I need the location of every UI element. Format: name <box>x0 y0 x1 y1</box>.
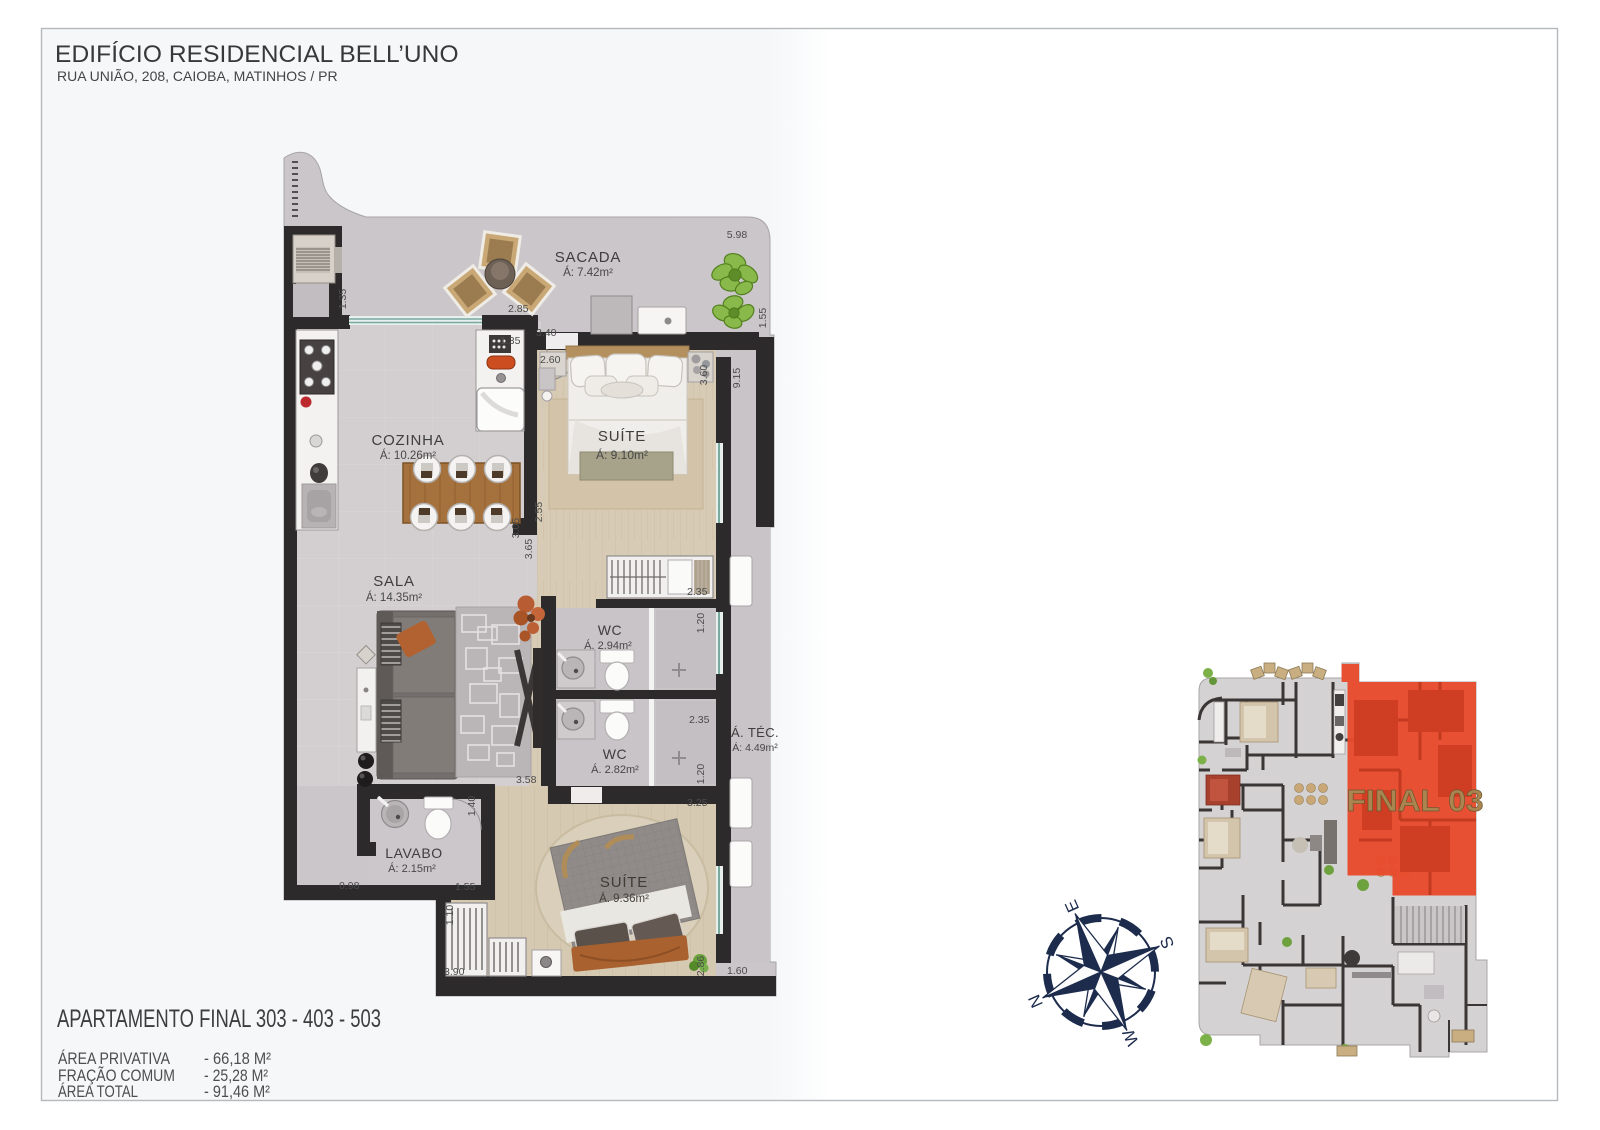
svg-text:1.10: 1.10 <box>444 905 456 926</box>
svg-text:Á: 7.42m²: Á: 7.42m² <box>563 266 613 279</box>
svg-text:1.35: 1.35 <box>500 335 521 347</box>
svg-text:2.86: 2.86 <box>695 956 707 977</box>
svg-text:0.98: 0.98 <box>339 880 360 892</box>
svg-text:2.35: 2.35 <box>687 586 708 598</box>
svg-text:5.98: 5.98 <box>727 229 748 241</box>
svg-text:3.60: 3.60 <box>698 365 710 386</box>
svg-text:SUÍTE: SUÍTE <box>600 874 648 891</box>
svg-text:2.85: 2.85 <box>508 303 529 315</box>
svg-text:3.05: 3.05 <box>510 518 522 539</box>
svg-text:3.40: 3.40 <box>536 327 557 339</box>
svg-text:FRAÇÃO COMUM: FRAÇÃO COMUM <box>58 1065 175 1085</box>
svg-text:FINAL 03: FINAL 03 <box>1347 783 1484 818</box>
svg-text:3.90: 3.90 <box>444 966 465 978</box>
svg-text:WC: WC <box>598 622 623 638</box>
svg-text:WC: WC <box>603 746 628 762</box>
svg-text:1.55: 1.55 <box>455 881 476 893</box>
svg-text:3.65: 3.65 <box>523 539 535 560</box>
svg-text:Á: 10.26m²: Á: 10.26m² <box>380 449 436 462</box>
svg-text:2.55: 2.55 <box>533 502 545 523</box>
svg-text:1.40: 1.40 <box>466 796 478 817</box>
svg-text:1.55: 1.55 <box>757 308 769 329</box>
svg-text:LAVABO: LAVABO <box>385 845 443 861</box>
svg-text:ÁREA PRIVATIVA: ÁREA PRIVATIVA <box>58 1049 170 1068</box>
svg-text:Á. TÉC.: Á. TÉC. <box>731 725 779 740</box>
svg-text:SUÍTE: SUÍTE <box>598 428 646 445</box>
svg-text:Á. 2.94m²: Á. 2.94m² <box>584 639 632 652</box>
svg-text:- 66,18 M²: - 66,18 M² <box>204 1050 271 1068</box>
svg-text:9.15: 9.15 <box>731 368 743 389</box>
svg-text:COZINHA: COZINHA <box>371 432 444 449</box>
svg-text:SACADA: SACADA <box>555 249 622 266</box>
svg-text:EDIFÍCIO RESIDENCIAL BELL’UNO: EDIFÍCIO RESIDENCIAL BELL’UNO <box>55 41 459 68</box>
svg-text:1.20: 1.20 <box>695 613 707 634</box>
svg-text:3.58: 3.58 <box>516 774 537 786</box>
svg-text:Á: 9.10m²: Á: 9.10m² <box>596 447 648 462</box>
svg-text:2.35: 2.35 <box>689 714 710 726</box>
svg-text:APARTAMENTO FINAL 303 - 403 -: APARTAMENTO FINAL 303 - 403 - 503 <box>57 1005 381 1033</box>
svg-text:1.35: 1.35 <box>337 289 349 310</box>
svg-text:Á. 2.82m²: Á. 2.82m² <box>591 763 639 776</box>
svg-text:1.60: 1.60 <box>727 965 748 977</box>
svg-text:RUA UNIÃO, 208, CAIOBA, MATINH: RUA UNIÃO, 208, CAIOBA, MATINHOS / PR <box>57 68 338 84</box>
svg-text:- 91,46 M²: - 91,46 M² <box>204 1083 270 1101</box>
svg-text:ÁREA TOTAL: ÁREA TOTAL <box>58 1082 138 1101</box>
svg-text:Á: 2.15m²: Á: 2.15m² <box>388 862 436 875</box>
svg-text:1.20: 1.20 <box>695 764 707 785</box>
svg-text:3.25: 3.25 <box>687 797 708 809</box>
svg-text:SALA: SALA <box>373 573 415 590</box>
svg-text:Á: 4.49m²: Á: 4.49m² <box>732 741 778 754</box>
svg-text:Á: 14.35m²: Á: 14.35m² <box>366 591 422 604</box>
svg-text:2.60: 2.60 <box>540 354 561 366</box>
svg-text:Á. 9.36m²: Á. 9.36m² <box>599 892 649 905</box>
